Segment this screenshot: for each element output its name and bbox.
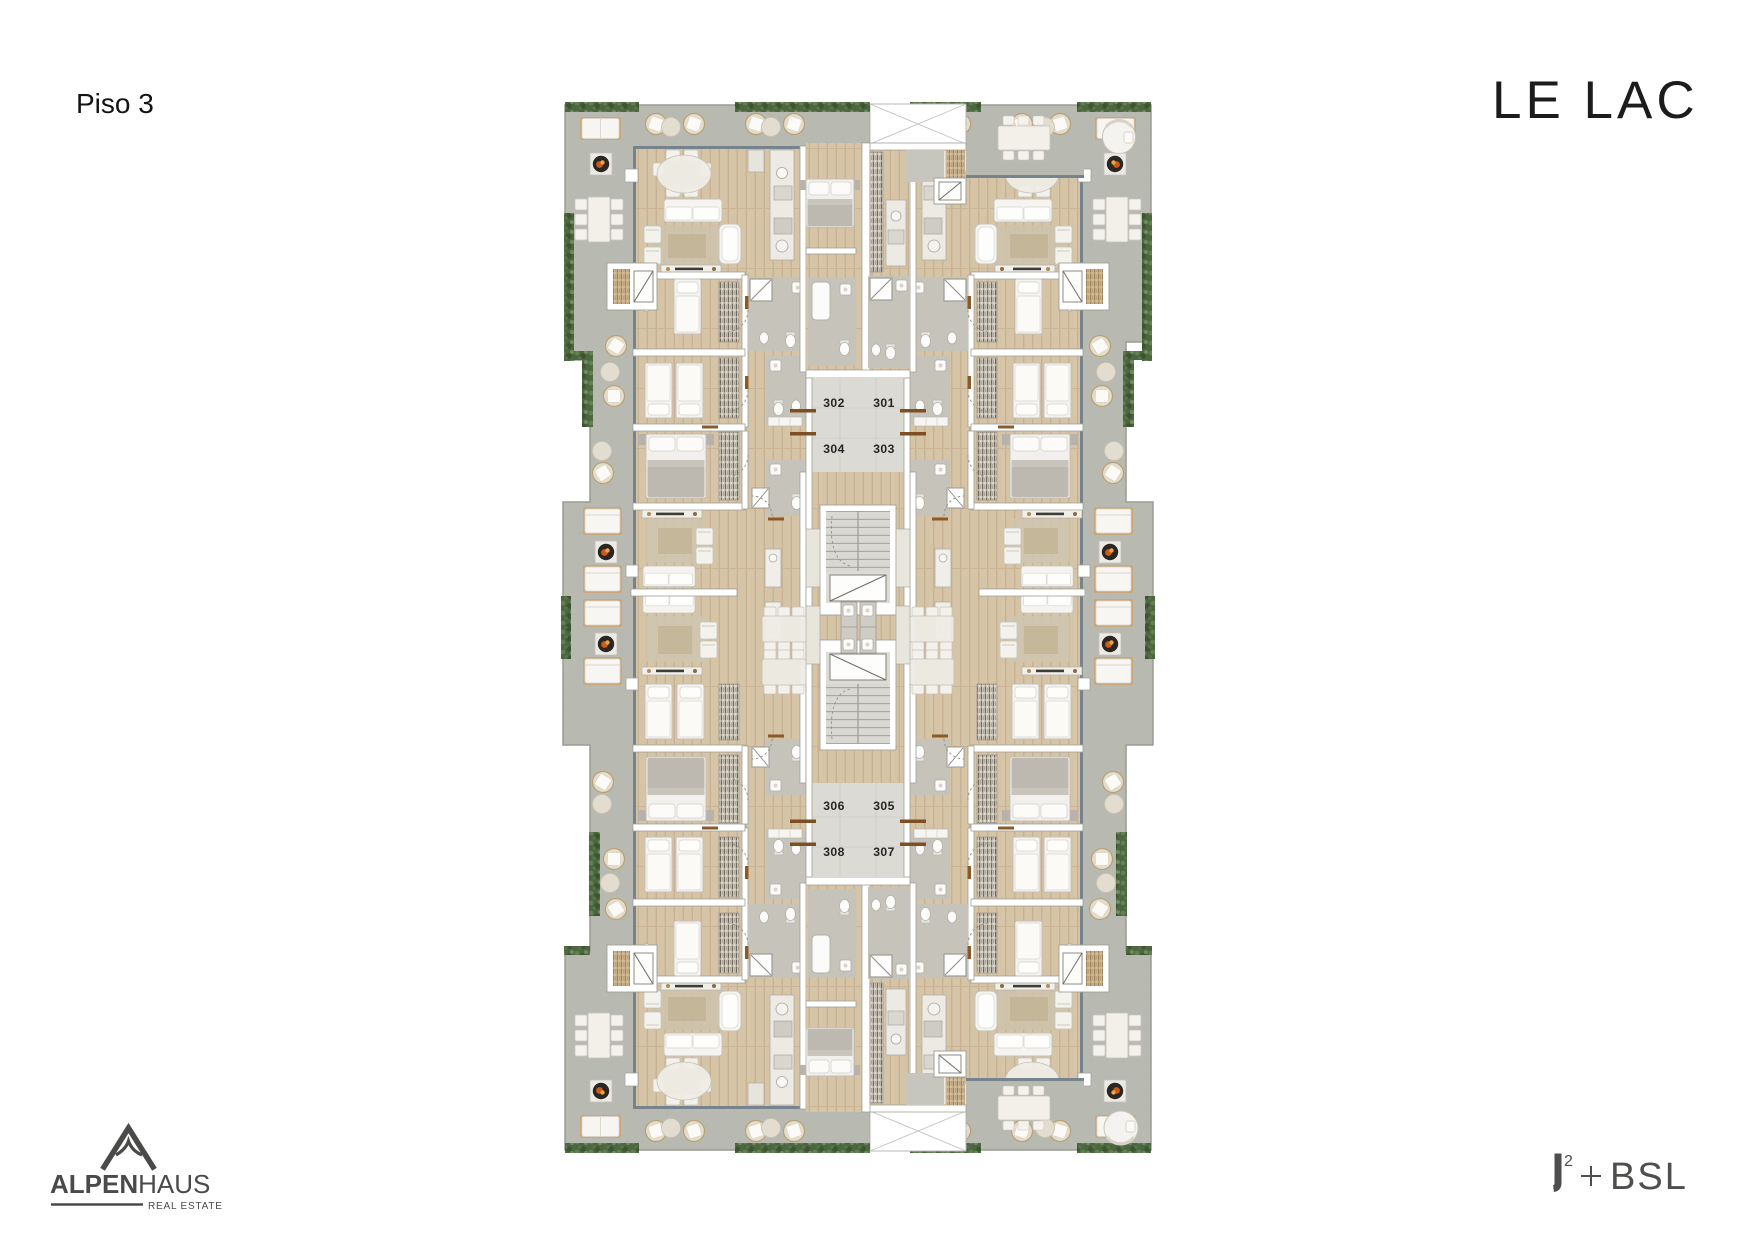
svg-text:ALPENHAUS: ALPENHAUS <box>50 1169 210 1199</box>
svg-text:302: 302 <box>823 396 845 410</box>
svg-text:LE LAC: LE LAC <box>1492 71 1699 130</box>
svg-text:305: 305 <box>873 799 895 813</box>
svg-text:306: 306 <box>823 799 845 813</box>
svg-text:BSL: BSL <box>1610 1156 1688 1198</box>
svg-text:301: 301 <box>873 396 895 410</box>
svg-text:Piso 3: Piso 3 <box>76 88 154 119</box>
svg-text:304: 304 <box>823 442 845 456</box>
svg-text:2: 2 <box>1564 1153 1573 1170</box>
svg-text:303: 303 <box>873 442 895 456</box>
svg-text:308: 308 <box>823 845 845 859</box>
svg-text:REAL ESTATE: REAL ESTATE <box>148 1201 223 1212</box>
svg-text:307: 307 <box>873 845 895 859</box>
